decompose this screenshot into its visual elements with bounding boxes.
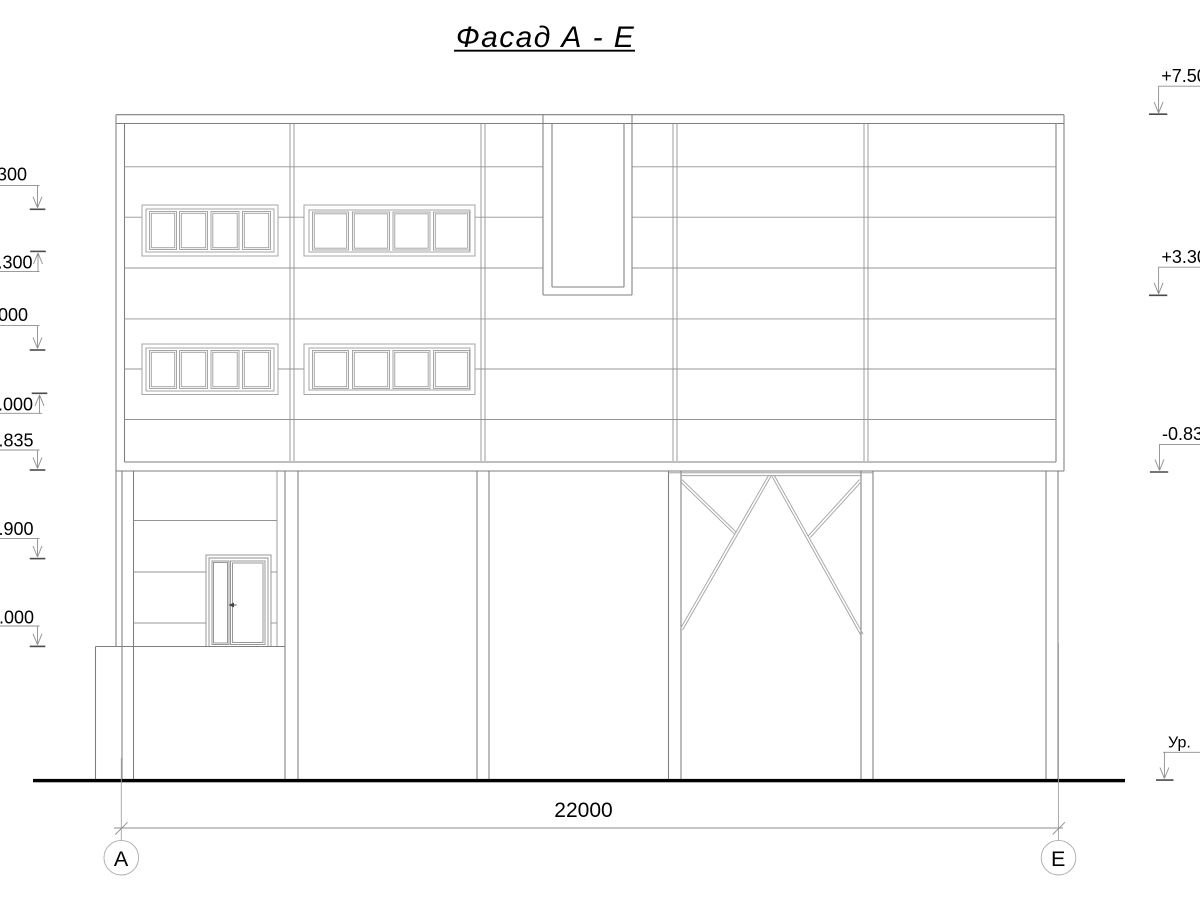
svg-text:.900: .900	[0, 519, 34, 539]
svg-text:.000: .000	[0, 608, 34, 628]
svg-text:300: 300	[0, 165, 27, 185]
svg-text:.300: .300	[0, 252, 33, 272]
svg-text:Фасад А - Е: Фасад А - Е	[456, 21, 635, 54]
svg-text:-0.835: -0.835	[1162, 424, 1200, 444]
svg-text:000: 000	[0, 305, 28, 325]
svg-text:+3.300: +3.300	[1161, 247, 1200, 267]
svg-text:+7.500: +7.500	[1161, 66, 1200, 86]
svg-text:А: А	[114, 847, 129, 871]
svg-text:Ур.: Ур.	[1168, 734, 1191, 751]
svg-text:.835: .835	[0, 431, 34, 451]
svg-text:Е: Е	[1051, 847, 1065, 871]
svg-text:22000: 22000	[554, 799, 612, 822]
svg-text:.000: .000	[0, 395, 33, 415]
